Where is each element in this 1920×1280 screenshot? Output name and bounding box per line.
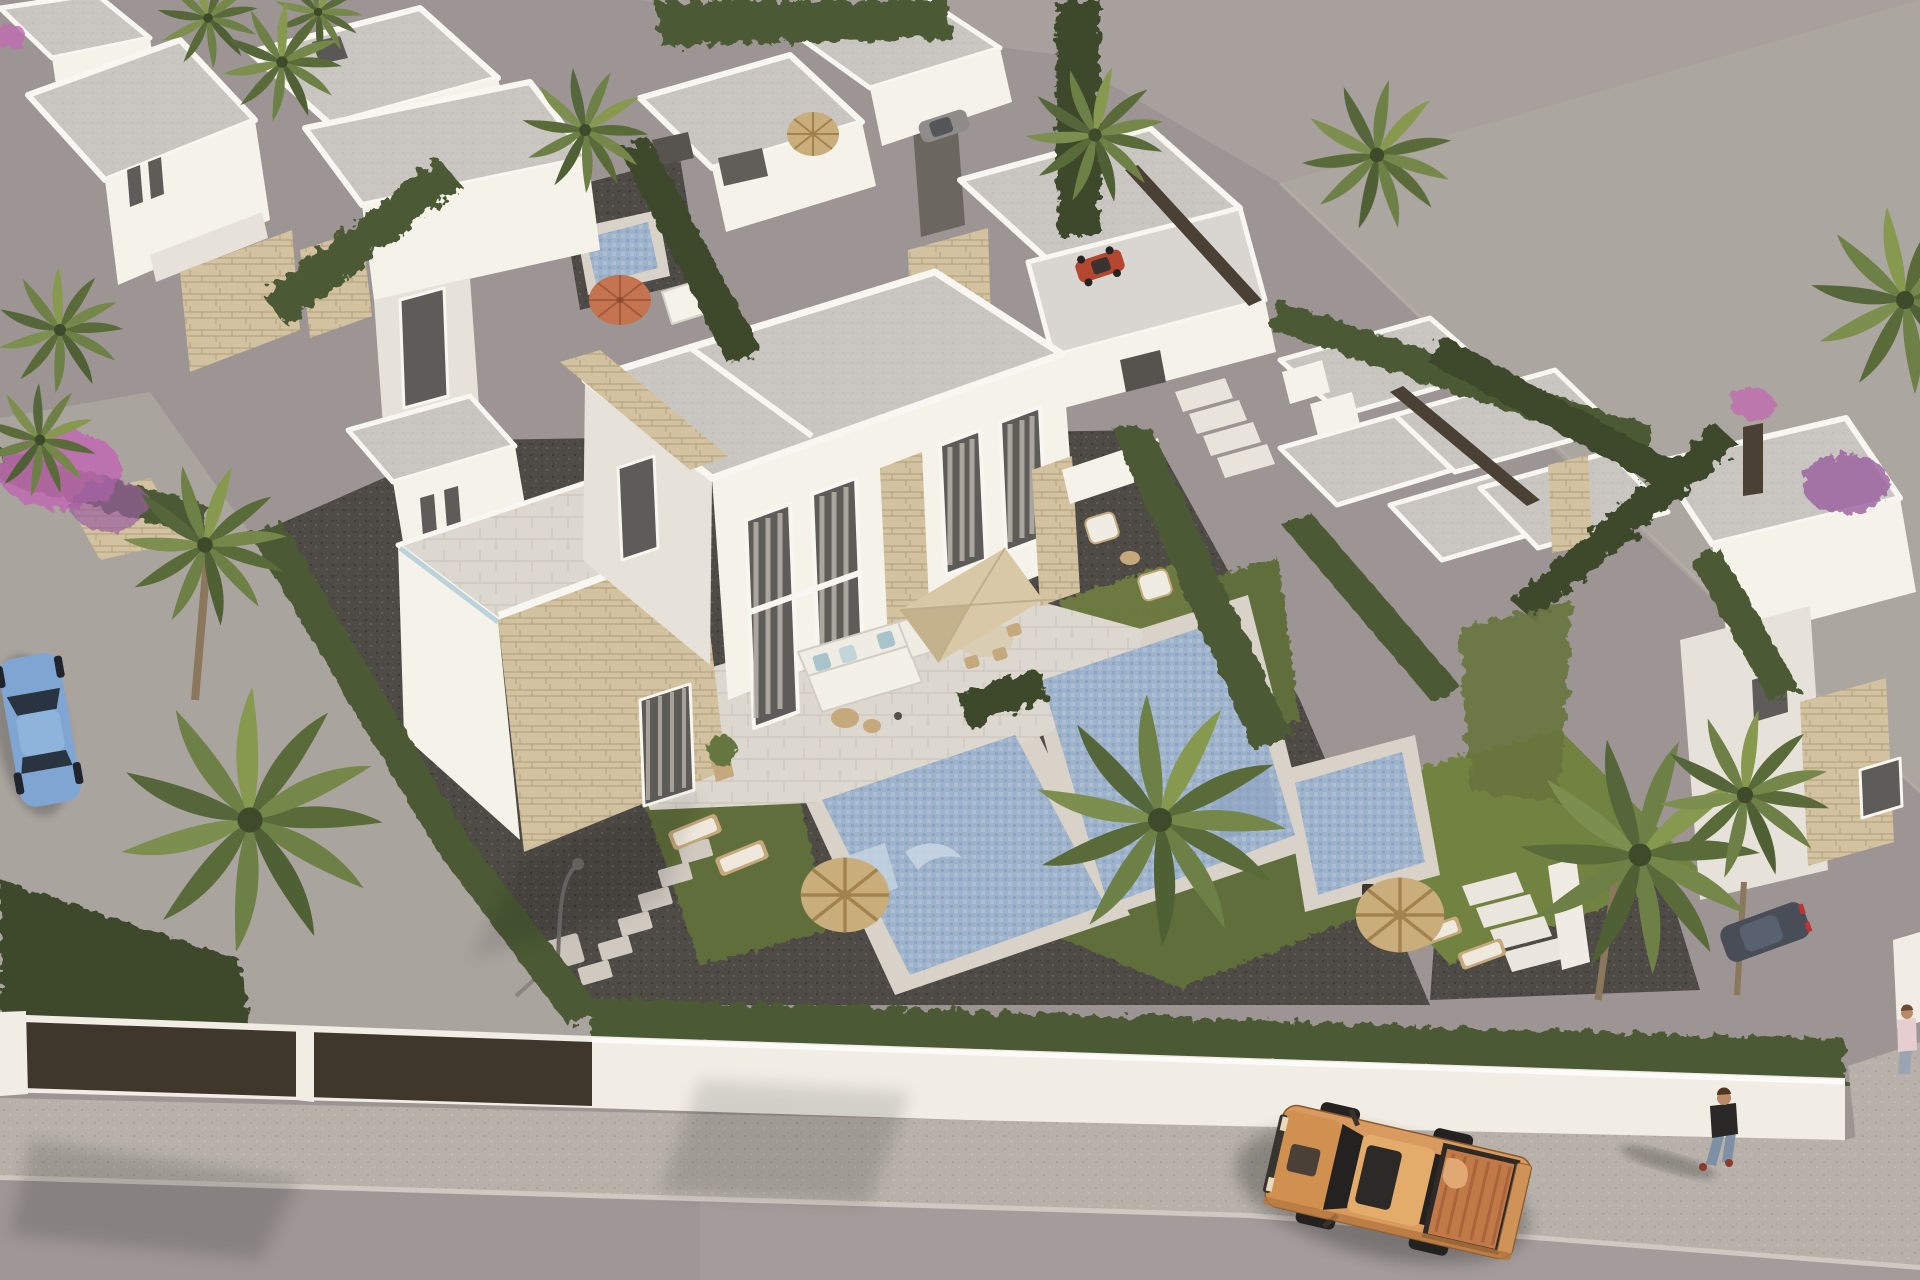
straw-umbrella-right: [1356, 878, 1444, 953]
window-strip: [940, 430, 986, 575]
aerial-render-stage: [0, 0, 1920, 1280]
car-roof: [15, 708, 66, 757]
coffee-table: [831, 708, 859, 728]
coffee-table-small: [863, 719, 881, 733]
gate-pillar: [0, 1011, 28, 1096]
banana-plants: [1459, 602, 1572, 802]
straw-umbrella-left: [801, 858, 889, 933]
side-table: [1120, 551, 1140, 565]
tower-side-window: [618, 456, 658, 560]
orange-umbrella: [589, 275, 651, 325]
window-strip: [746, 504, 798, 728]
bougainvillea-right: [1802, 454, 1890, 514]
window: [1860, 758, 1902, 818]
gate-pillar: [296, 1030, 314, 1102]
hedge-top: [655, 0, 952, 46]
window: [400, 288, 448, 408]
straw-umbrella-back: [787, 112, 839, 156]
torso: [1897, 1018, 1917, 1052]
lantern: [894, 712, 902, 720]
torso: [1710, 1103, 1738, 1138]
villa-development-render: [0, 0, 1920, 1280]
